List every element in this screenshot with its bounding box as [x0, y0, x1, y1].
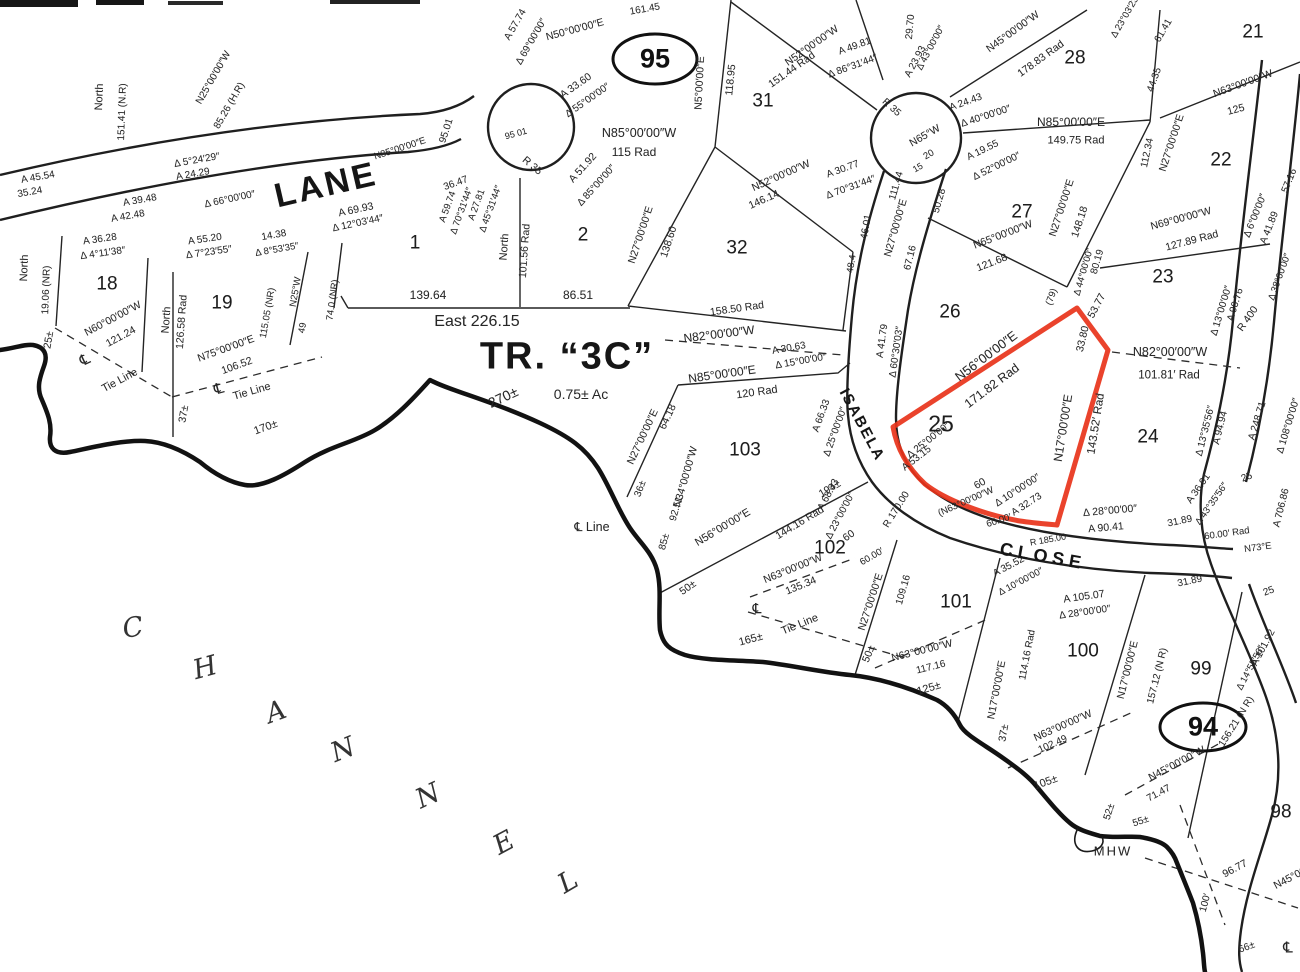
lot-number: 2 — [578, 226, 589, 245]
water-letter: C — [120, 613, 145, 643]
map-label: N45°00′00″W — [985, 9, 1042, 54]
map-label: N27°00′00″E — [626, 408, 661, 466]
plat-map: TR. “3C” 0.75± Ac A 45.5435.24North151.4… — [0, 0, 1300, 972]
water-letter: H — [190, 652, 220, 684]
map-label: 67.16 — [903, 245, 919, 272]
map-label: 100′ — [1199, 893, 1213, 914]
map-label: 144.16 Rad — [774, 505, 826, 542]
lot-number: 25 — [928, 413, 954, 436]
map-label: A 24.29 — [175, 167, 210, 183]
map-label: 44.35 — [1146, 67, 1164, 94]
map-label: Δ 40°00′00″ — [960, 104, 1012, 129]
map-label: N27°00′00″E — [627, 205, 655, 265]
lot-number: 98 — [1270, 803, 1291, 822]
lot-number: 32 — [726, 239, 747, 258]
map-label: 101.81′ Rad — [1138, 370, 1200, 382]
map-label: 86.51 — [563, 289, 593, 301]
map-label: R 35 — [520, 155, 544, 177]
map-label: 66± — [1237, 940, 1256, 955]
map-label: 60.00′ — [859, 546, 886, 567]
lot-number: 103 — [729, 441, 761, 460]
map-label: 165± — [738, 632, 764, 649]
map-label: N45°00′ — [1272, 865, 1300, 892]
map-label: A 706.86 — [1272, 488, 1291, 529]
map-label: 178.83 Rad — [1016, 39, 1066, 79]
map-label: East 226.15 — [434, 314, 519, 330]
map-label: North — [161, 306, 174, 334]
lot-number: 1 — [410, 234, 421, 253]
map-label: 25 — [1262, 585, 1276, 598]
map-label: N73°E — [1244, 541, 1273, 554]
map-label: 92.51 — [669, 496, 686, 523]
map-label: 20 — [922, 148, 936, 162]
map-label: 161.45 — [629, 2, 661, 17]
map-label: Δ 14°55′56″ — [1235, 644, 1266, 692]
map-label: 112.34 — [1140, 137, 1156, 168]
map-label: 50± — [678, 579, 698, 598]
map-label: 33.80 — [1075, 325, 1091, 353]
map-label: 270± — [486, 384, 520, 410]
map-label: 48.4 — [846, 254, 859, 274]
map-label: Tie Line — [232, 381, 272, 402]
map-label: 139.64 — [410, 289, 447, 301]
map-label: Δ 108°00′00″ — [1276, 397, 1300, 455]
street-name: ISABELA — [837, 386, 888, 464]
sheet-ref: 94 — [1188, 714, 1218, 741]
map-label: Δ 28°00′00″ — [1059, 604, 1112, 621]
map-label: ℄ — [212, 381, 225, 398]
map-label: 60.00′ — [985, 513, 1012, 530]
map-label: 19.06 (NR) — [41, 265, 53, 314]
map-label: 106.52 — [220, 356, 254, 377]
map-label: A 19.55 — [966, 139, 1001, 163]
map-label: N17°00′00″E — [986, 660, 1008, 720]
map-label: A 248.71 — [1247, 401, 1268, 442]
map-label: Tie Line — [100, 367, 139, 395]
map-label: Δ 86°31′44″ — [827, 53, 879, 80]
map-label: A 90.41 — [1088, 521, 1124, 535]
map-label: A 39.48 — [122, 193, 157, 209]
map-label: 25± — [42, 330, 55, 349]
map-label: N82°00′00″W — [1133, 346, 1207, 359]
map-label: N17°00′00″E — [1052, 393, 1074, 462]
lot-number: 22 — [1210, 151, 1231, 170]
map-label: N69°00′00″W — [1149, 206, 1212, 232]
map-label: Tie Line — [780, 613, 820, 638]
map-label: ℄ Line — [574, 521, 609, 534]
map-label: Δ 4°11′38″ — [80, 246, 126, 262]
map-label: 96.77 — [1221, 858, 1249, 880]
lot-number: 26 — [939, 303, 960, 322]
map-label: N85°00′00″E — [1037, 116, 1105, 128]
map-label: 52± — [1103, 803, 1118, 822]
lot-number: 19 — [211, 294, 232, 313]
map-label: 148.18 — [1070, 205, 1090, 239]
map-label: 55± — [1132, 815, 1151, 830]
map-label: 120 Rad — [736, 385, 779, 402]
map-label: Δ 8°53′35″ — [255, 242, 300, 259]
map-label: N27°00′00″E — [1158, 113, 1186, 173]
map-label: Δ 60°30′03″ — [888, 326, 905, 379]
map-label: Δ 23°03′23″ — [1110, 0, 1143, 40]
map-label: 135.34 — [784, 575, 818, 597]
map-label: N85°00′00″W — [602, 127, 676, 140]
map-label: 158.50 Rad — [709, 300, 764, 318]
map-label: 35.24 — [17, 186, 43, 200]
map-label: A 42.48 — [110, 209, 145, 225]
map-label: 31.89 — [1167, 515, 1194, 530]
map-label: 50.28 — [932, 188, 949, 215]
map-label: 156.21 (N R) — [1218, 695, 1257, 749]
map-label: A 36.28 — [83, 233, 118, 248]
map-label: Δ 38°00′00″ — [1267, 252, 1293, 301]
map-label: 109.16 — [895, 574, 913, 606]
map-label: N56°00′00″E — [693, 507, 752, 549]
map-label: 118.95 — [724, 64, 738, 96]
map-label: Δ 15°00′00″ — [775, 353, 828, 372]
map-label: 127.89 Rad — [1164, 229, 1219, 253]
map-label: N25°W — [289, 276, 304, 307]
map-label: 146.14 — [747, 189, 781, 212]
map-label: 157.12 (N R) — [1146, 647, 1170, 705]
water-letter: N — [412, 779, 445, 813]
map-label: 143.52′ Rad — [1087, 393, 1108, 456]
map-label: 57.16 — [1281, 168, 1300, 195]
map-label: N45°00′00″W — [1147, 745, 1207, 784]
map-label: 15 — [911, 162, 924, 175]
map-label: R 35 — [880, 97, 902, 119]
map-label: N52°00′00″W — [750, 159, 811, 194]
map-label: (79) — [1045, 287, 1060, 306]
map-label: 101.56 Rad — [518, 224, 532, 279]
lot-number: 100 — [1067, 642, 1099, 661]
sheet-ref: 95 — [640, 46, 670, 73]
lot-number: 24 — [1137, 428, 1158, 447]
map-label: ℄ — [1283, 941, 1293, 956]
map-label: 111.44 — [888, 171, 906, 202]
map-label: 121.68 — [975, 252, 1009, 273]
map-label: 64.18 — [658, 403, 679, 431]
map-label: A 30.63 — [771, 341, 806, 357]
lot-number: 23 — [1152, 268, 1173, 287]
water-letter: A — [262, 696, 290, 728]
map-label: 50± — [861, 644, 877, 664]
map-label: 125 — [1226, 103, 1246, 118]
map-label: 37± — [177, 404, 190, 423]
map-label: N63°00′00″W — [1212, 68, 1274, 99]
map-label: 61.41 — [1153, 18, 1174, 45]
map-label: 85± — [658, 533, 672, 552]
map-label: Δ 66°00′00″ — [204, 190, 257, 211]
map-label: A 105.07 — [1063, 589, 1106, 605]
map-label: North — [94, 83, 106, 110]
map-label: 46.01 — [860, 214, 874, 240]
map-label: N27°00′00″E — [857, 572, 885, 632]
map-label: 37± — [997, 723, 1010, 742]
lot-number: 101 — [940, 593, 972, 612]
map-label: N65°W — [908, 123, 942, 149]
map-label: N82°00′00″W — [683, 324, 755, 345]
map-label: 105± — [1033, 774, 1060, 793]
map-label: N17°00′00″E — [1116, 640, 1141, 700]
map-label: ℄ — [753, 601, 762, 615]
map-label: 151.41 (N.R) — [117, 83, 129, 141]
map-label: (N63°00′00″W — [937, 486, 995, 519]
lot-number: 18 — [96, 275, 117, 294]
map-label: 29.70 — [905, 14, 917, 40]
map-label: 170± — [253, 419, 280, 438]
map-label: A 30.77 — [825, 160, 860, 181]
map-label: 95.01 — [438, 118, 455, 145]
map-label: N27°00′00″E — [883, 198, 909, 258]
map-label: N50°00′00″E — [545, 17, 605, 43]
map-label: R 170.00 — [882, 490, 912, 530]
map-label: A 41.89 — [1259, 210, 1281, 245]
map-label: 115 Rad — [612, 146, 656, 158]
map-label: 74.0 (NR) — [325, 279, 340, 321]
lot-number: 28 — [1064, 49, 1085, 68]
map-label: ℄ — [77, 351, 92, 369]
map-label: 25 — [1240, 471, 1254, 484]
lot-number: 27 — [1011, 203, 1032, 222]
map-label: North — [19, 254, 31, 281]
lot-number: 21 — [1242, 23, 1263, 42]
map-label: North — [499, 233, 512, 261]
map-label: 53.77 — [1086, 292, 1108, 320]
map-label: A 24.43 — [948, 93, 983, 114]
water-letter: E — [489, 826, 519, 859]
lot-number: 31 — [752, 92, 773, 111]
map-label: 31.89 — [1177, 575, 1204, 590]
map-label: 36± — [633, 479, 648, 498]
lot-number: 102 — [814, 539, 846, 558]
map-label: 60.00′ Rad — [1204, 526, 1251, 542]
map-label: 126.58 Rad — [175, 295, 189, 350]
map-label: A 41.79 — [876, 324, 891, 359]
water-letter: L — [553, 866, 582, 898]
map-label: Δ 7°23′55″ — [185, 245, 232, 261]
map-label: 125± — [916, 680, 943, 698]
map-label: 114.16 Rad — [1018, 629, 1038, 681]
map-label: A 66.33 — [812, 398, 833, 433]
map-label: 85.26 (H.R) — [213, 81, 248, 131]
lot-number: 99 — [1190, 660, 1211, 679]
map-label: N85°00′00″E — [687, 363, 756, 384]
map-label: 71.47 — [1146, 784, 1173, 805]
map-label: 149.75 Rad — [1048, 136, 1105, 147]
map-label: 138.60 — [659, 225, 679, 259]
map-label: 95 01 — [504, 127, 528, 142]
map-label: N5°00′00″E — [693, 56, 706, 110]
map-label: A 45.54 — [20, 170, 55, 186]
map-label: N85°00′00″E — [373, 136, 427, 162]
map-label: MHW — [1094, 845, 1133, 858]
map-label: 117.16 — [915, 660, 946, 677]
map-label: 49 — [297, 322, 308, 334]
map-label: 115.05 (NR) — [259, 287, 277, 339]
map-label: A 57.74 — [503, 8, 529, 42]
map-label: N65°00′00″W — [972, 219, 1034, 251]
map-label: Δ 28°00′00″ — [1083, 503, 1138, 518]
map-annotations: A 45.5435.24North151.41 (N.R)N25°00′00″W… — [0, 0, 1300, 972]
map-label: 121.24 — [104, 325, 137, 349]
water-letter: N — [327, 733, 359, 767]
map-label: 14.38 — [261, 229, 287, 243]
